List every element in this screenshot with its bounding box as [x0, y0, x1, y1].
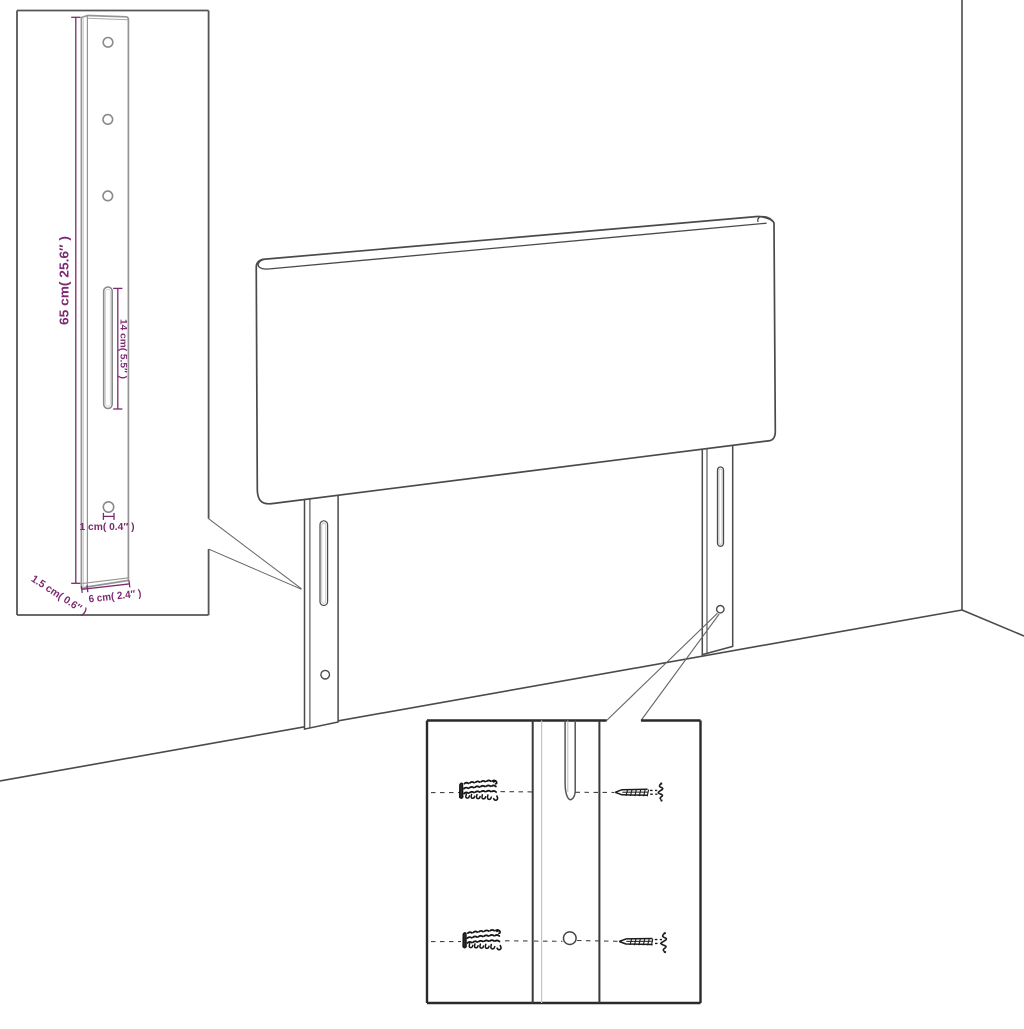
svg-text:14 cm( 5.5″ ): 14 cm( 5.5″ )	[119, 319, 129, 379]
svg-text:65 cm( 25.6″ ): 65 cm( 25.6″ )	[57, 236, 72, 325]
svg-text:1 cm( 0.4″ ): 1 cm( 0.4″ )	[80, 521, 135, 533]
